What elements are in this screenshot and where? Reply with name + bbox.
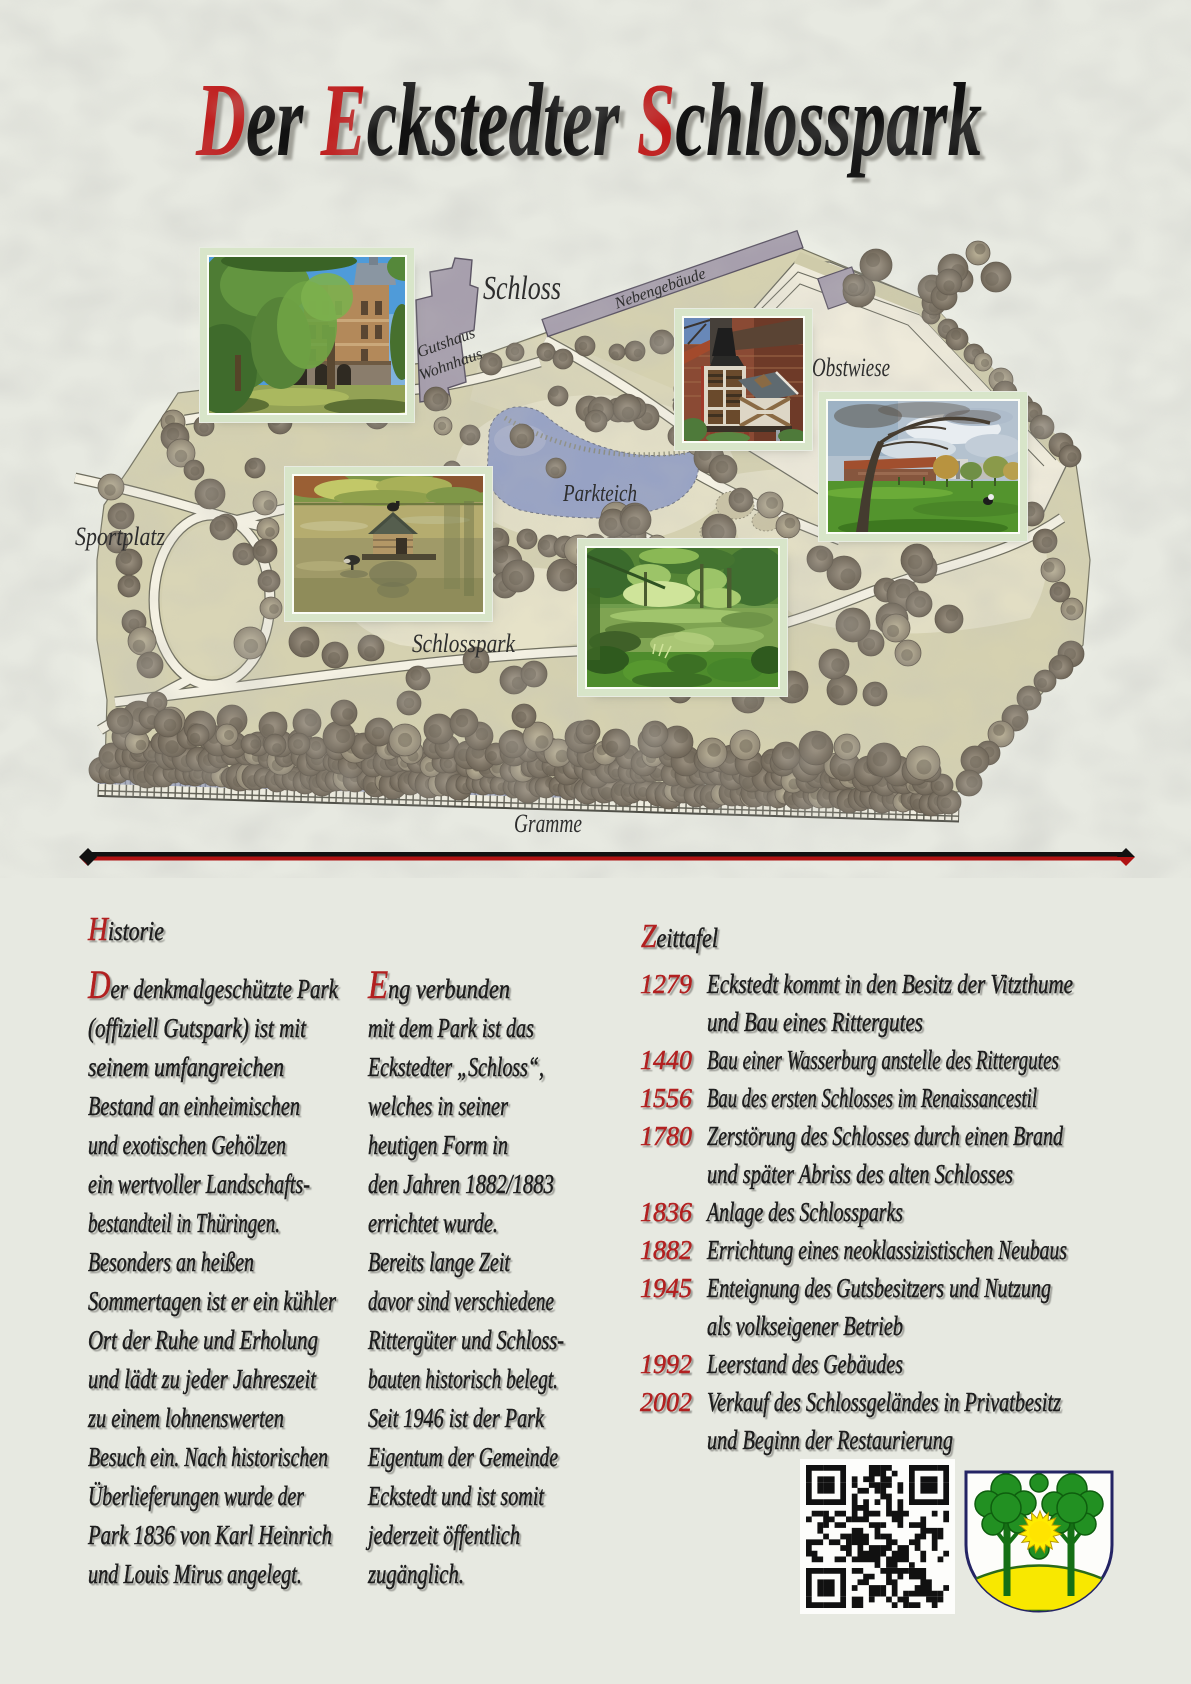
svg-text:und lädt zu jeder Jahreszeit: und lädt zu jeder Jahreszeit xyxy=(88,1364,317,1394)
svg-text:mit dem Park ist das: mit dem Park ist das xyxy=(368,1013,534,1043)
svg-text:Verkauf des Schlossgeländes in: Verkauf des Schlossgeländes in Privatbes… xyxy=(707,1387,1061,1417)
svg-text:und später Abriss des alten Sc: und später Abriss des alten Schlosses xyxy=(707,1159,1013,1189)
svg-text:Besonders an heißen: Besonders an heißen xyxy=(88,1247,254,1277)
svg-text:Obstwiese: Obstwiese xyxy=(812,353,890,382)
svg-text:errichtet wurde.: errichtet wurde. xyxy=(368,1208,498,1238)
svg-text:Zeittafel: Zeittafel xyxy=(641,918,718,955)
svg-text:Bereits lange Zeit: Bereits lange Zeit xyxy=(368,1247,511,1277)
svg-text:bauten historisch belegt.: bauten historisch belegt. xyxy=(368,1364,558,1394)
svg-text:1279: 1279 xyxy=(640,969,692,999)
svg-text:1945: 1945 xyxy=(640,1273,692,1303)
svg-text:als volkseigener Betrieb: als volkseigener Betrieb xyxy=(707,1311,903,1341)
svg-text:Park 1836 von Karl Heinrich: Park 1836 von Karl Heinrich xyxy=(87,1520,332,1550)
svg-text:ein wertvoller Landschafts-: ein wertvoller Landschafts- xyxy=(88,1169,310,1199)
svg-text:Bau des ersten Schlosses im Re: Bau des ersten Schlosses im Renaissances… xyxy=(707,1083,1037,1113)
svg-text:1836: 1836 xyxy=(640,1197,692,1227)
svg-text:1780: 1780 xyxy=(640,1121,692,1151)
svg-text:Eigentum der Gemeinde: Eigentum der Gemeinde xyxy=(367,1442,558,1472)
svg-text:Der denkmalgeschützte Park: Der denkmalgeschützte Park xyxy=(87,962,339,1007)
svg-text:zugänglich.: zugänglich. xyxy=(367,1559,464,1589)
svg-text:Enteignung des Gutsbesitzers u: Enteignung des Gutsbesitzers und Nutzung xyxy=(706,1273,1051,1303)
svg-text:Bestand an einheimischen: Bestand an einheimischen xyxy=(88,1091,300,1121)
svg-text:und Bau eines Rittergutes: und Bau eines Rittergutes xyxy=(707,1007,923,1037)
svg-text:Eckstedter „Schloss“,: Eckstedter „Schloss“, xyxy=(367,1052,544,1082)
svg-text:Ort der Ruhe und Erholung: Ort der Ruhe und Erholung xyxy=(88,1325,318,1355)
svg-text:2002: 2002 xyxy=(640,1387,692,1417)
svg-text:Sportplatz: Sportplatz xyxy=(75,522,165,551)
svg-text:Anlage des Schlossparks: Anlage des Schlossparks xyxy=(706,1197,903,1227)
svg-text:Errichtung eines neoklassizist: Errichtung eines neoklassizistischen Neu… xyxy=(706,1235,1067,1265)
svg-text:den Jahren 1882/1883: den Jahren 1882/1883 xyxy=(368,1169,554,1199)
svg-text:Seit 1946 ist der Park: Seit 1946 ist der Park xyxy=(368,1403,545,1433)
svg-text:Überlieferungen wurde der: Überlieferungen wurde der xyxy=(88,1481,304,1511)
svg-text:Schlosspark: Schlosspark xyxy=(412,629,515,658)
svg-text:Eckstedt kommt in den Besitz d: Eckstedt kommt in den Besitz der Vitzthu… xyxy=(706,969,1073,999)
svg-text:jederzeit öffentlich: jederzeit öffentlich xyxy=(366,1520,520,1550)
svg-text:Besuch ein. Nach historischen: Besuch ein. Nach historischen xyxy=(88,1442,328,1472)
svg-text:bestandteil in Thüringen.: bestandteil in Thüringen. xyxy=(88,1208,280,1238)
svg-text:Bau einer Wasserburg anstelle: Bau einer Wasserburg anstelle des Ritter… xyxy=(707,1045,1059,1075)
svg-text:Eckstedt und ist somit: Eckstedt und ist somit xyxy=(367,1481,545,1511)
svg-text:Sommertagen ist er ein kühler: Sommertagen ist er ein kühler xyxy=(88,1286,336,1316)
svg-text:1440: 1440 xyxy=(640,1045,692,1075)
svg-text:Leerstand des Gebäudes: Leerstand des Gebäudes xyxy=(706,1349,903,1379)
svg-text:und Beginn der Restaurierung: und Beginn der Restaurierung xyxy=(707,1425,953,1455)
svg-text:welches in seiner: welches in seiner xyxy=(368,1091,508,1121)
svg-text:1992: 1992 xyxy=(640,1349,692,1379)
svg-text:seinem umfangreichen: seinem umfangreichen xyxy=(88,1052,284,1082)
svg-text:1556: 1556 xyxy=(640,1083,692,1113)
svg-text:(offiziell Gutspark) ist mit: (offiziell Gutspark) ist mit xyxy=(88,1013,307,1043)
svg-text:Historie: Historie xyxy=(87,911,164,948)
svg-text:Gramme: Gramme xyxy=(514,809,582,838)
svg-text:Parkteich: Parkteich xyxy=(562,481,637,507)
svg-text:davor sind verschiedene: davor sind verschiedene xyxy=(368,1286,554,1316)
svg-text:Rittergüter und Schloss-: Rittergüter und Schloss- xyxy=(367,1325,564,1355)
svg-text:und exotischen Gehölzen: und exotischen Gehölzen xyxy=(88,1130,286,1160)
svg-text:zu einem lohnenswerten: zu einem lohnenswerten xyxy=(87,1403,284,1433)
svg-text:Eng verbunden: Eng verbunden xyxy=(367,962,510,1007)
svg-text:Schloss: Schloss xyxy=(483,270,561,307)
svg-text:1882: 1882 xyxy=(640,1235,692,1265)
svg-text:und Louis Mirus angelegt.: und Louis Mirus angelegt. xyxy=(88,1559,302,1589)
svg-text:Zerstörung des Schlosses durch: Zerstörung des Schlosses durch einen Bra… xyxy=(707,1121,1063,1151)
svg-text:heutigen Form in: heutigen Form in xyxy=(368,1130,508,1160)
